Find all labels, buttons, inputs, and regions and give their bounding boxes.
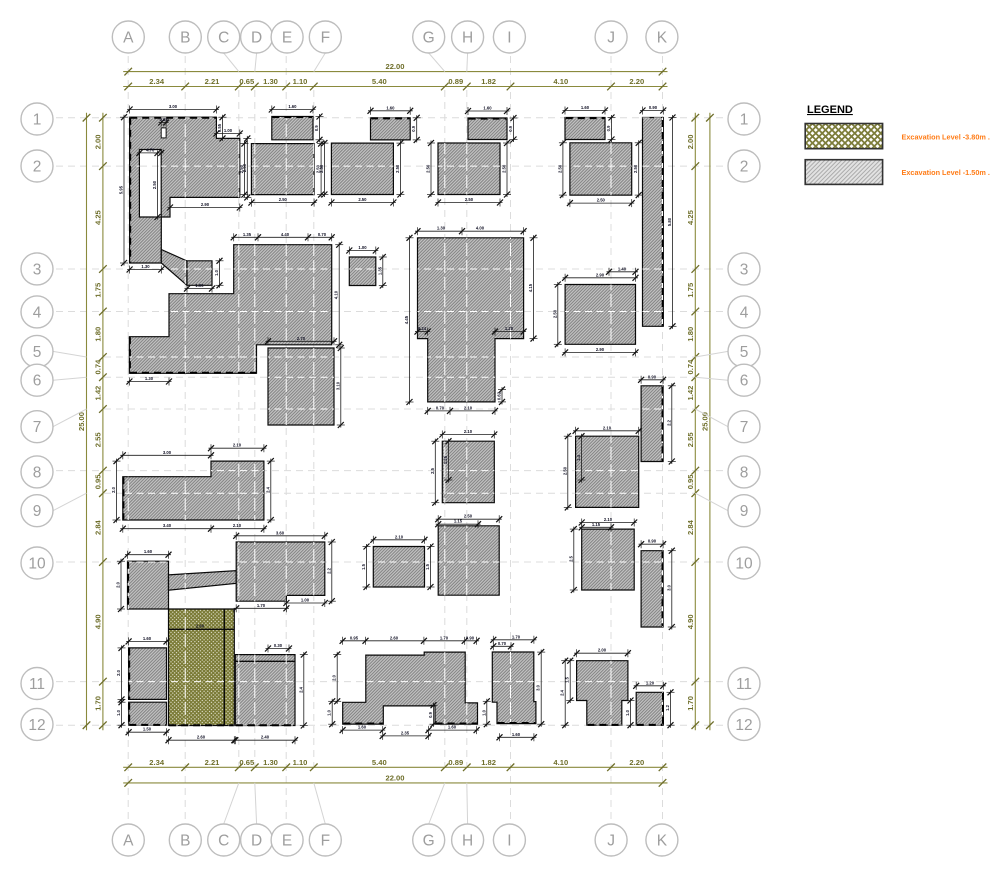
svg-text:0.63: 0.63 (160, 117, 169, 122)
svg-text:1.50: 1.50 (143, 727, 152, 732)
svg-text:2.10: 2.10 (233, 443, 242, 448)
svg-text:2.50: 2.50 (597, 198, 606, 203)
svg-text:2.20: 2.20 (629, 758, 644, 767)
svg-text:0.55: 0.55 (217, 123, 222, 132)
svg-text:3.40: 3.40 (163, 523, 172, 528)
svg-text:1.75: 1.75 (93, 282, 102, 298)
svg-text:A: A (123, 833, 134, 850)
svg-text:4.10: 4.10 (553, 77, 568, 86)
svg-text:3.60: 3.60 (276, 530, 285, 535)
svg-text:4.45: 4.45 (404, 315, 409, 324)
svg-text:9: 9 (33, 503, 42, 520)
svg-text:1.00: 1.00 (358, 245, 367, 250)
svg-text:0.70: 0.70 (436, 405, 445, 410)
svg-text:E: E (282, 30, 292, 47)
svg-text:2.4: 2.4 (560, 689, 565, 695)
svg-text:1.15: 1.15 (454, 519, 463, 524)
svg-text:7: 7 (33, 419, 42, 436)
svg-text:1.60: 1.60 (483, 106, 492, 111)
svg-text:2.60: 2.60 (197, 735, 206, 740)
svg-text:F: F (321, 833, 330, 850)
svg-text:2: 2 (740, 159, 749, 176)
svg-text:2.00: 2.00 (686, 135, 695, 150)
svg-text:1.80: 1.80 (686, 327, 695, 342)
svg-text:0.9: 0.9 (606, 125, 611, 131)
svg-text:0.95: 0.95 (350, 635, 359, 640)
svg-text:1.35: 1.35 (243, 232, 252, 237)
svg-text:2.10: 2.10 (464, 405, 473, 410)
svg-text:8: 8 (740, 464, 749, 481)
svg-text:1.30: 1.30 (145, 376, 154, 381)
svg-text:1.4: 1.4 (576, 454, 581, 460)
svg-text:0.70: 0.70 (318, 232, 327, 237)
svg-text:4: 4 (740, 304, 749, 321)
svg-text:1.30: 1.30 (263, 77, 278, 86)
svg-text:1.00: 1.00 (301, 598, 310, 603)
svg-text:2.21: 2.21 (205, 758, 221, 767)
svg-text:10: 10 (735, 556, 753, 573)
svg-text:2.10: 2.10 (233, 523, 242, 528)
svg-text:1.70: 1.70 (440, 635, 449, 640)
svg-text:0.95: 0.95 (93, 474, 102, 490)
svg-text:4.25: 4.25 (686, 209, 695, 225)
svg-text:1.60: 1.60 (581, 105, 590, 110)
svg-text:2.0: 2.0 (116, 669, 121, 675)
svg-text:0.24: 0.24 (418, 326, 427, 331)
svg-text:2.10: 2.10 (464, 429, 473, 434)
svg-text:4.90: 4.90 (93, 614, 102, 629)
svg-text:E: E (282, 833, 292, 850)
svg-text:4.15: 4.15 (528, 283, 533, 292)
svg-text:4: 4 (33, 304, 42, 321)
svg-text:2.90: 2.90 (596, 272, 605, 277)
svg-text:2.55: 2.55 (686, 432, 695, 448)
svg-text:2.50: 2.50 (319, 164, 324, 173)
svg-text:3: 3 (33, 261, 42, 278)
svg-text:0.9: 0.9 (314, 125, 319, 131)
svg-text:1.0: 1.0 (116, 709, 121, 715)
svg-text:C: C (218, 30, 229, 47)
svg-text:1.30: 1.30 (437, 226, 446, 231)
svg-text:1.5: 1.5 (361, 563, 366, 569)
svg-text:25.00: 25.00 (77, 412, 86, 431)
svg-text:2.55: 2.55 (93, 432, 102, 448)
svg-text:2.50: 2.50 (279, 197, 288, 202)
svg-text:3.10: 3.10 (335, 381, 340, 390)
svg-text:0.65: 0.65 (239, 77, 255, 86)
svg-text:2.50: 2.50 (502, 164, 507, 173)
svg-text:3.0: 3.0 (536, 684, 541, 690)
svg-text:6: 6 (33, 373, 42, 390)
svg-text:2.60: 2.60 (390, 635, 399, 640)
svg-text:2.50: 2.50 (395, 164, 400, 173)
svg-text:1.60: 1.60 (448, 725, 457, 730)
svg-text:2.10: 2.10 (604, 517, 613, 522)
svg-text:1.82: 1.82 (481, 77, 496, 86)
svg-text:1.60: 1.60 (144, 549, 153, 554)
svg-text:3.00: 3.00 (163, 450, 172, 455)
svg-text:LEGEND: LEGEND (807, 104, 853, 116)
svg-text:1.75: 1.75 (686, 282, 695, 298)
svg-text:5: 5 (740, 344, 749, 361)
svg-text:2.84: 2.84 (93, 519, 102, 535)
svg-text:2.0: 2.0 (111, 486, 116, 492)
svg-text:25.00: 25.00 (700, 412, 709, 431)
svg-text:0.95: 0.95 (686, 474, 695, 490)
svg-text:5.40: 5.40 (372, 77, 387, 86)
svg-text:2.50: 2.50 (552, 309, 557, 318)
svg-text:1.70: 1.70 (512, 634, 521, 639)
svg-text:0.90: 0.90 (649, 105, 658, 110)
svg-text:2.50: 2.50 (426, 164, 431, 173)
svg-text:2.00: 2.00 (93, 135, 102, 150)
svg-text:2.50: 2.50 (557, 164, 562, 173)
svg-text:22.00: 22.00 (385, 62, 404, 71)
svg-text:11: 11 (736, 676, 752, 693)
svg-text:1.00: 1.00 (224, 128, 233, 133)
svg-text:2.20: 2.20 (629, 77, 644, 86)
svg-text:1.82: 1.82 (481, 758, 496, 767)
svg-text:1.0: 1.0 (625, 709, 630, 715)
svg-text:2.50: 2.50 (152, 180, 157, 189)
svg-text:D: D (251, 833, 262, 850)
svg-text:0.62: 0.62 (497, 391, 502, 400)
svg-text:0.74: 0.74 (686, 359, 695, 375)
svg-text:2.50: 2.50 (465, 197, 474, 202)
svg-text:2.10: 2.10 (395, 534, 404, 539)
svg-text:2.50: 2.50 (633, 164, 638, 173)
svg-text:2: 2 (33, 159, 42, 176)
svg-text:1.30: 1.30 (141, 264, 150, 269)
svg-text:2.84: 2.84 (686, 519, 695, 535)
svg-text:2.5: 2.5 (430, 467, 435, 473)
svg-text:4.70: 4.70 (146, 147, 155, 152)
svg-text:2.50: 2.50 (464, 514, 473, 519)
svg-text:I: I (507, 30, 511, 47)
svg-text:0.90: 0.90 (466, 635, 475, 640)
svg-text:2.70: 2.70 (297, 336, 306, 341)
svg-text:H: H (462, 30, 473, 47)
svg-text:H: H (462, 833, 473, 850)
svg-text:2.00: 2.00 (598, 648, 607, 653)
svg-text:A: A (123, 30, 134, 47)
svg-text:2.5: 2.5 (568, 555, 573, 561)
svg-text:2.0: 2.0 (332, 674, 337, 680)
svg-text:4.10: 4.10 (553, 758, 568, 767)
svg-text:5.80: 5.80 (667, 217, 672, 226)
svg-text:2.90: 2.90 (596, 347, 605, 352)
svg-text:B: B (180, 30, 190, 47)
svg-text:4.40: 4.40 (281, 232, 290, 237)
svg-text:5.95: 5.95 (119, 185, 124, 194)
svg-text:2.4: 2.4 (298, 686, 303, 692)
svg-text:I: I (507, 833, 511, 850)
svg-text:0.9: 0.9 (428, 711, 433, 717)
svg-text:1.5: 1.5 (425, 563, 430, 569)
svg-text:1.2: 1.2 (665, 704, 670, 710)
svg-text:1.0: 1.0 (481, 709, 486, 715)
svg-text:6: 6 (740, 373, 749, 390)
svg-text:0.70: 0.70 (498, 641, 507, 646)
svg-text:5: 5 (33, 344, 42, 361)
svg-text:1.42: 1.42 (686, 386, 695, 401)
svg-text:1.20: 1.20 (646, 680, 655, 685)
svg-text:G: G (423, 833, 435, 850)
svg-text:1.70: 1.70 (93, 696, 102, 711)
svg-text:4.25: 4.25 (93, 209, 102, 225)
svg-text:1: 1 (33, 112, 42, 129)
svg-text:2.60: 2.60 (196, 624, 205, 629)
svg-text:1.60: 1.60 (512, 732, 521, 737)
svg-text:2.50: 2.50 (562, 466, 567, 475)
svg-text:1.42: 1.42 (93, 386, 102, 401)
svg-text:0.89: 0.89 (448, 758, 463, 767)
svg-text:2.2: 2.2 (326, 567, 331, 573)
svg-text:2.10: 2.10 (603, 425, 612, 430)
svg-text:2.40: 2.40 (261, 735, 270, 740)
svg-text:3: 3 (740, 261, 749, 278)
svg-text:F: F (321, 30, 330, 47)
svg-text:4.10: 4.10 (334, 290, 339, 299)
svg-text:2.34: 2.34 (149, 758, 165, 767)
svg-text:C: C (218, 833, 229, 850)
svg-text:1.25: 1.25 (443, 455, 448, 464)
svg-text:7: 7 (740, 419, 749, 436)
svg-text:Excavation Level -3.80m .: Excavation Level -3.80m . (902, 133, 990, 142)
svg-text:2.90: 2.90 (201, 202, 210, 207)
svg-text:0.90: 0.90 (648, 539, 657, 544)
svg-text:1.0: 1.0 (327, 709, 332, 715)
svg-text:1.70: 1.70 (686, 696, 695, 711)
svg-text:0.9: 0.9 (411, 125, 416, 131)
svg-text:3.00: 3.00 (169, 104, 178, 109)
svg-text:0.30: 0.30 (274, 643, 283, 648)
svg-text:0.90: 0.90 (648, 374, 657, 379)
svg-text:2.21: 2.21 (205, 77, 221, 86)
svg-text:10: 10 (28, 556, 46, 573)
svg-text:D: D (251, 30, 262, 47)
svg-text:1.20: 1.20 (505, 326, 514, 331)
svg-text:2.0: 2.0 (116, 581, 121, 587)
svg-text:2.50: 2.50 (239, 164, 244, 173)
svg-text:J: J (607, 30, 615, 47)
svg-text:12: 12 (28, 717, 45, 734)
svg-text:Excavation Level -1.50m .: Excavation Level -1.50m . (902, 168, 990, 177)
svg-text:12: 12 (735, 717, 752, 734)
svg-text:1.60: 1.60 (288, 104, 297, 109)
svg-text:1.10: 1.10 (293, 77, 308, 86)
svg-text:1.80: 1.80 (93, 327, 102, 342)
svg-text:2.4: 2.4 (265, 486, 270, 492)
svg-text:4.90: 4.90 (686, 614, 695, 629)
svg-text:0.89: 0.89 (448, 77, 463, 86)
svg-text:1.35: 1.35 (377, 266, 382, 275)
svg-text:2.50: 2.50 (358, 197, 367, 202)
svg-text:K: K (657, 833, 668, 850)
svg-text:2.2: 2.2 (666, 419, 671, 425)
svg-text:1.30: 1.30 (263, 758, 278, 767)
svg-text:11: 11 (29, 676, 45, 693)
svg-text:1.00: 1.00 (195, 283, 204, 288)
svg-text:5.40: 5.40 (372, 758, 387, 767)
svg-text:22.00: 22.00 (385, 773, 404, 782)
svg-text:0.65: 0.65 (239, 758, 255, 767)
svg-text:1.15: 1.15 (592, 522, 601, 527)
svg-text:2.35: 2.35 (401, 730, 410, 735)
svg-text:G: G (423, 30, 435, 47)
svg-text:1.60: 1.60 (358, 725, 367, 730)
svg-text:K: K (657, 30, 668, 47)
svg-text:4.00: 4.00 (476, 226, 485, 231)
svg-text:1: 1 (740, 112, 749, 129)
svg-text:1.40: 1.40 (618, 266, 627, 271)
svg-text:8: 8 (33, 464, 42, 481)
svg-text:J: J (607, 833, 615, 850)
svg-text:0.74: 0.74 (93, 359, 102, 375)
svg-text:1.60: 1.60 (386, 105, 395, 110)
svg-text:2.34: 2.34 (149, 77, 165, 86)
svg-text:3.0: 3.0 (666, 584, 671, 590)
svg-text:9: 9 (740, 503, 749, 520)
svg-text:1.10: 1.10 (293, 758, 308, 767)
svg-text:1.0: 1.0 (214, 269, 219, 275)
svg-text:1.60: 1.60 (143, 636, 152, 641)
svg-text:1.70: 1.70 (257, 603, 266, 608)
svg-text:0.9: 0.9 (508, 125, 513, 131)
svg-text:B: B (180, 833, 190, 850)
